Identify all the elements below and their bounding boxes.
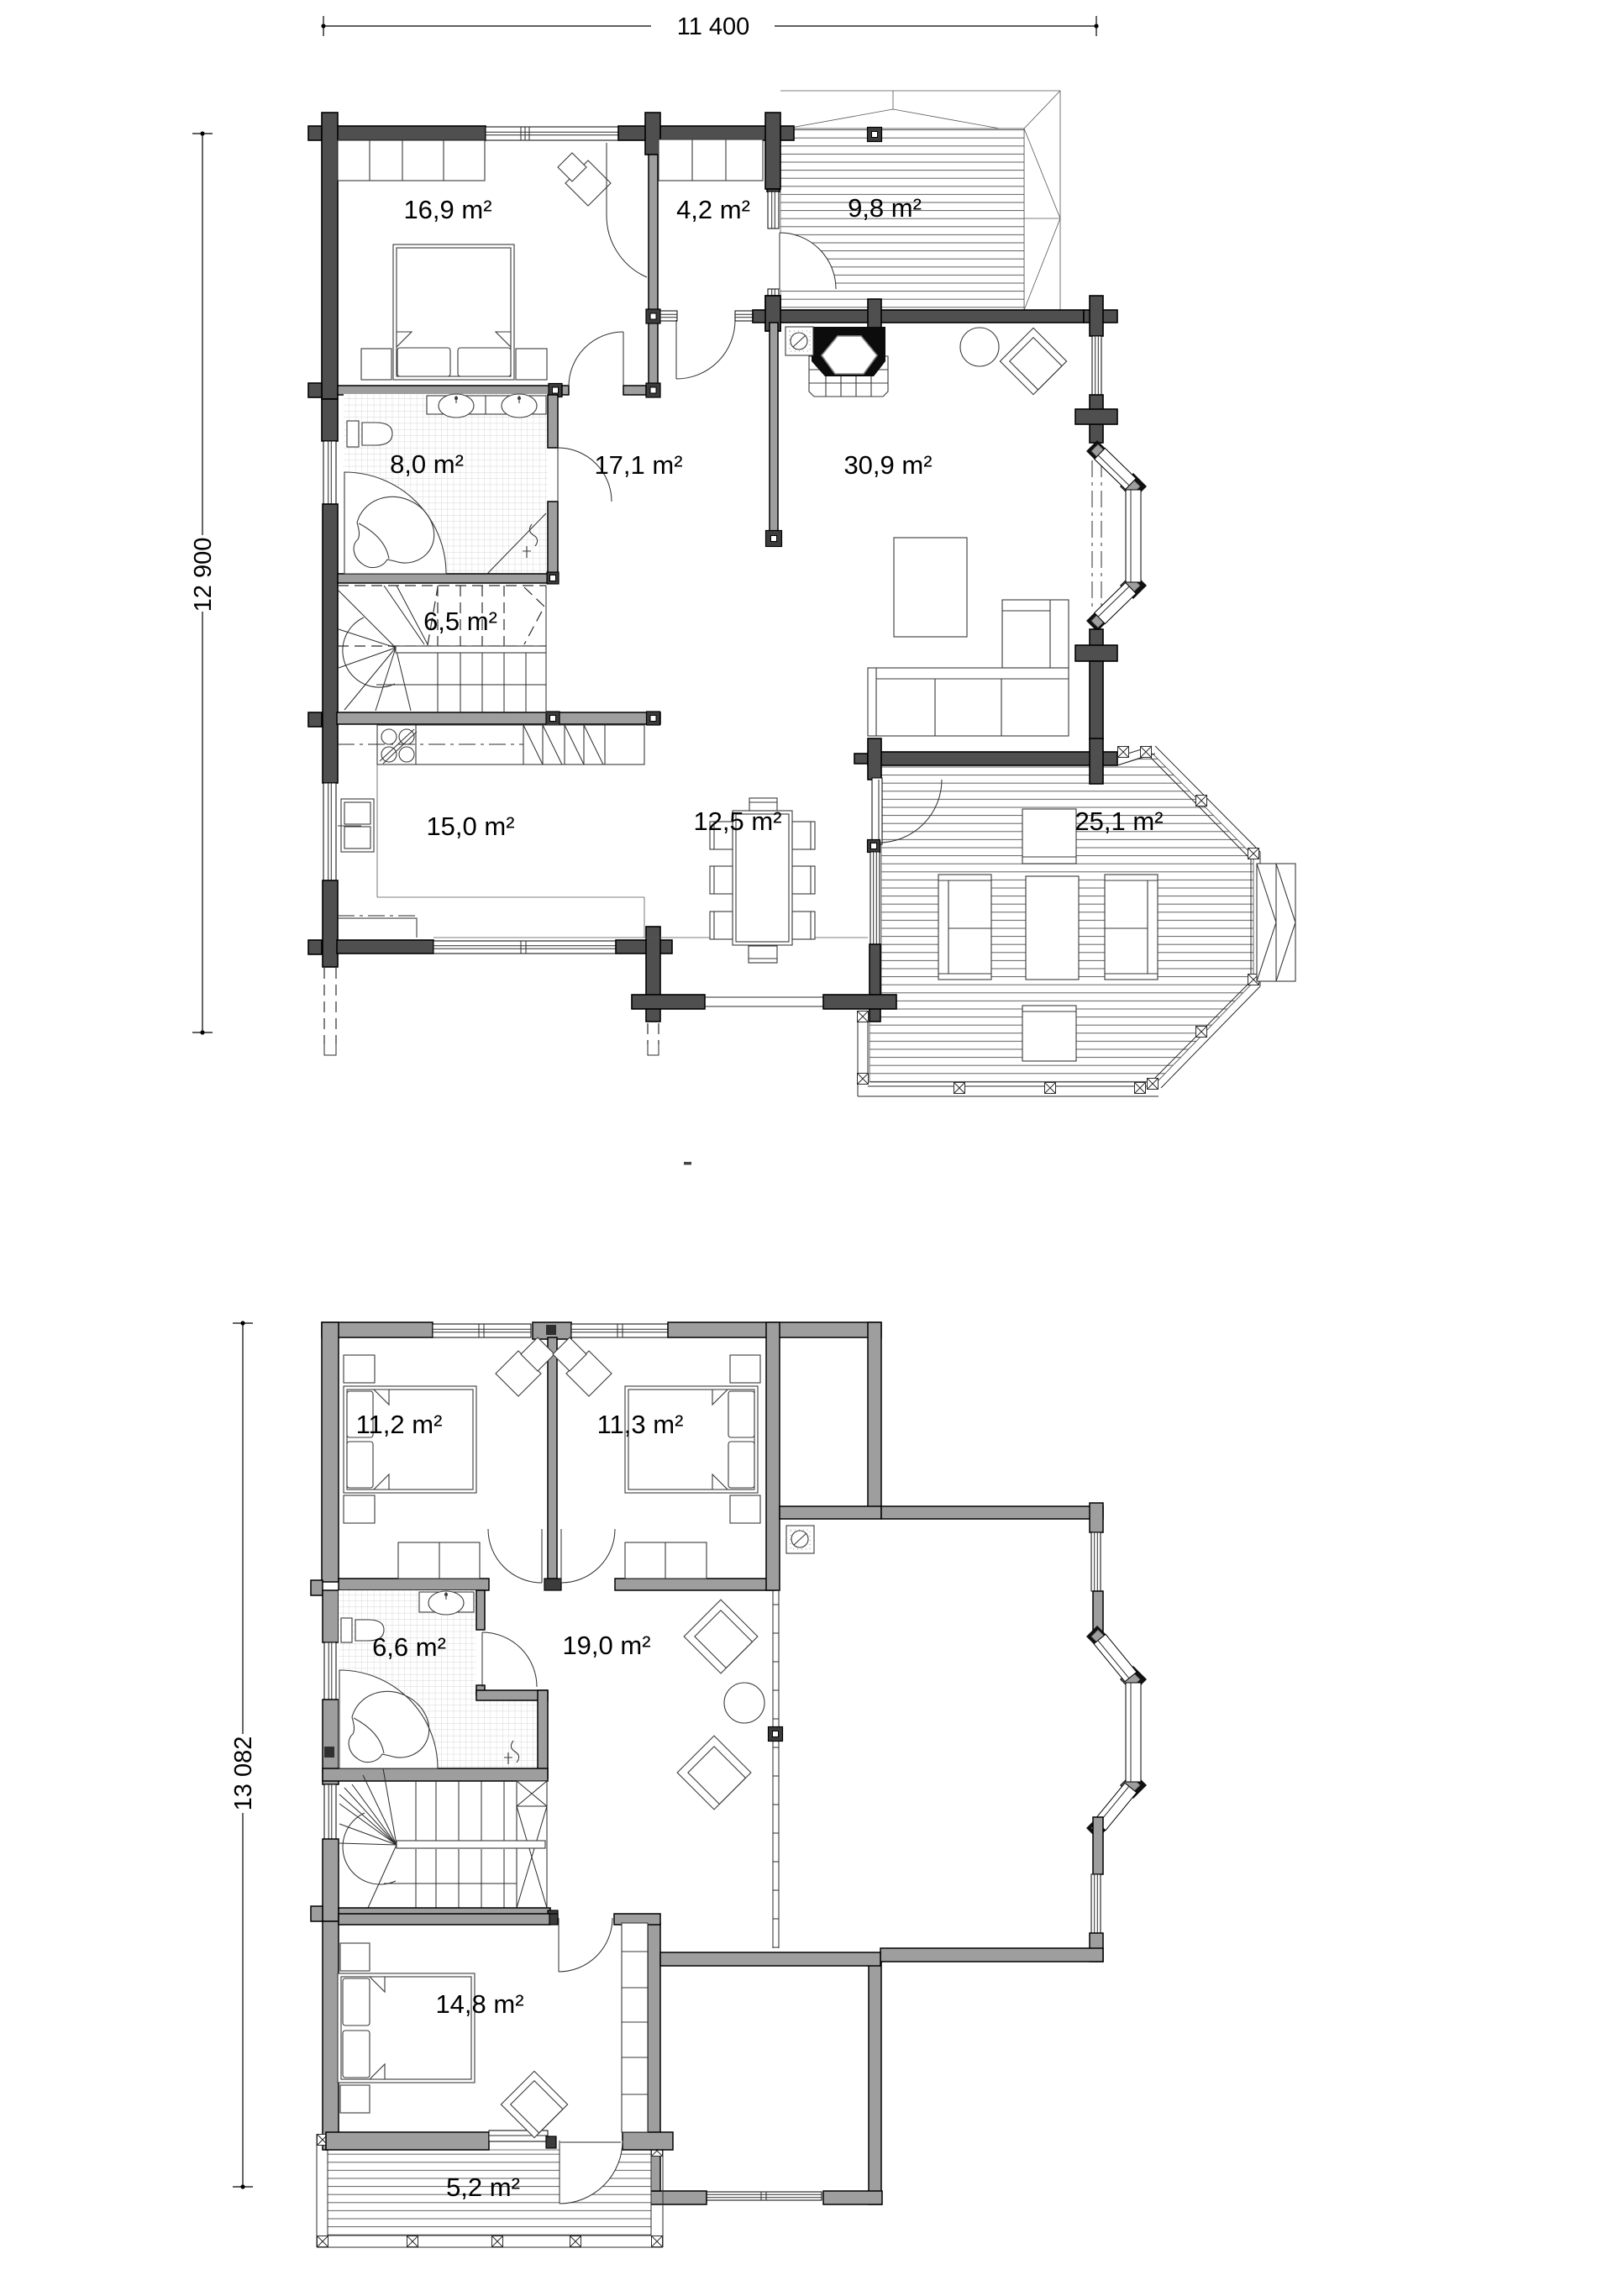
svg-text:16,9 m²: 16,9 m² bbox=[403, 195, 491, 224]
svg-text:5,2 m²: 5,2 m² bbox=[446, 2173, 520, 2202]
svg-text:11 400: 11 400 bbox=[677, 13, 750, 40]
svg-text:30,9 m²: 30,9 m² bbox=[843, 450, 932, 480]
svg-text:11,3 m²: 11,3 m² bbox=[597, 1410, 684, 1439]
svg-text:25,1 m²: 25,1 m² bbox=[1074, 806, 1163, 836]
svg-text:15,0 m²: 15,0 m² bbox=[426, 812, 514, 841]
svg-text:19,0 m²: 19,0 m² bbox=[562, 1631, 650, 1660]
svg-text:8,0 m²: 8,0 m² bbox=[390, 449, 464, 479]
svg-text:6,5 m²: 6,5 m² bbox=[423, 607, 497, 636]
svg-text:12 900: 12 900 bbox=[190, 538, 217, 612]
svg-text:9,8 m²: 9,8 m² bbox=[848, 193, 922, 223]
svg-text:11,2 m²: 11,2 m² bbox=[356, 1410, 443, 1439]
svg-text:12,5 m²: 12,5 m² bbox=[693, 806, 781, 836]
svg-text:13 082: 13 082 bbox=[230, 1736, 257, 1811]
svg-text:4,2 m²: 4,2 m² bbox=[676, 195, 750, 224]
svg-text:14,8 m²: 14,8 m² bbox=[435, 1989, 523, 2019]
svg-text:17,1 m²: 17,1 m² bbox=[594, 450, 682, 480]
svg-text:6,6 m²: 6,6 m² bbox=[372, 1632, 446, 1662]
